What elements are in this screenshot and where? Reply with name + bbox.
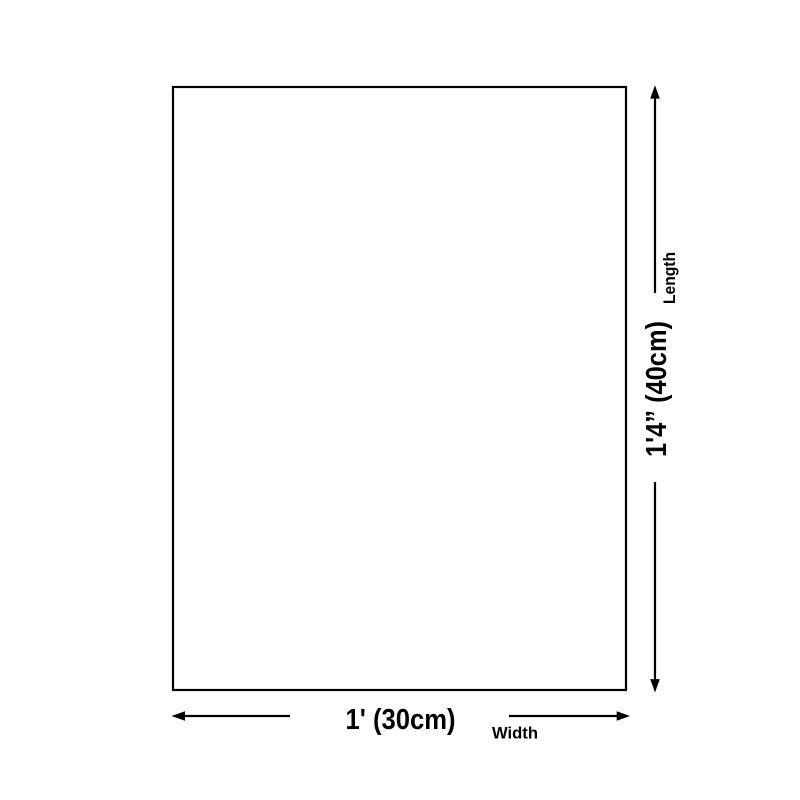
svg-text:1'4” (40cm): 1'4” (40cm)	[641, 321, 673, 457]
svg-text:Width: Width	[492, 724, 538, 743]
svg-text:1' (30cm): 1' (30cm)	[346, 704, 456, 736]
svg-text:Length: Length	[660, 252, 679, 304]
